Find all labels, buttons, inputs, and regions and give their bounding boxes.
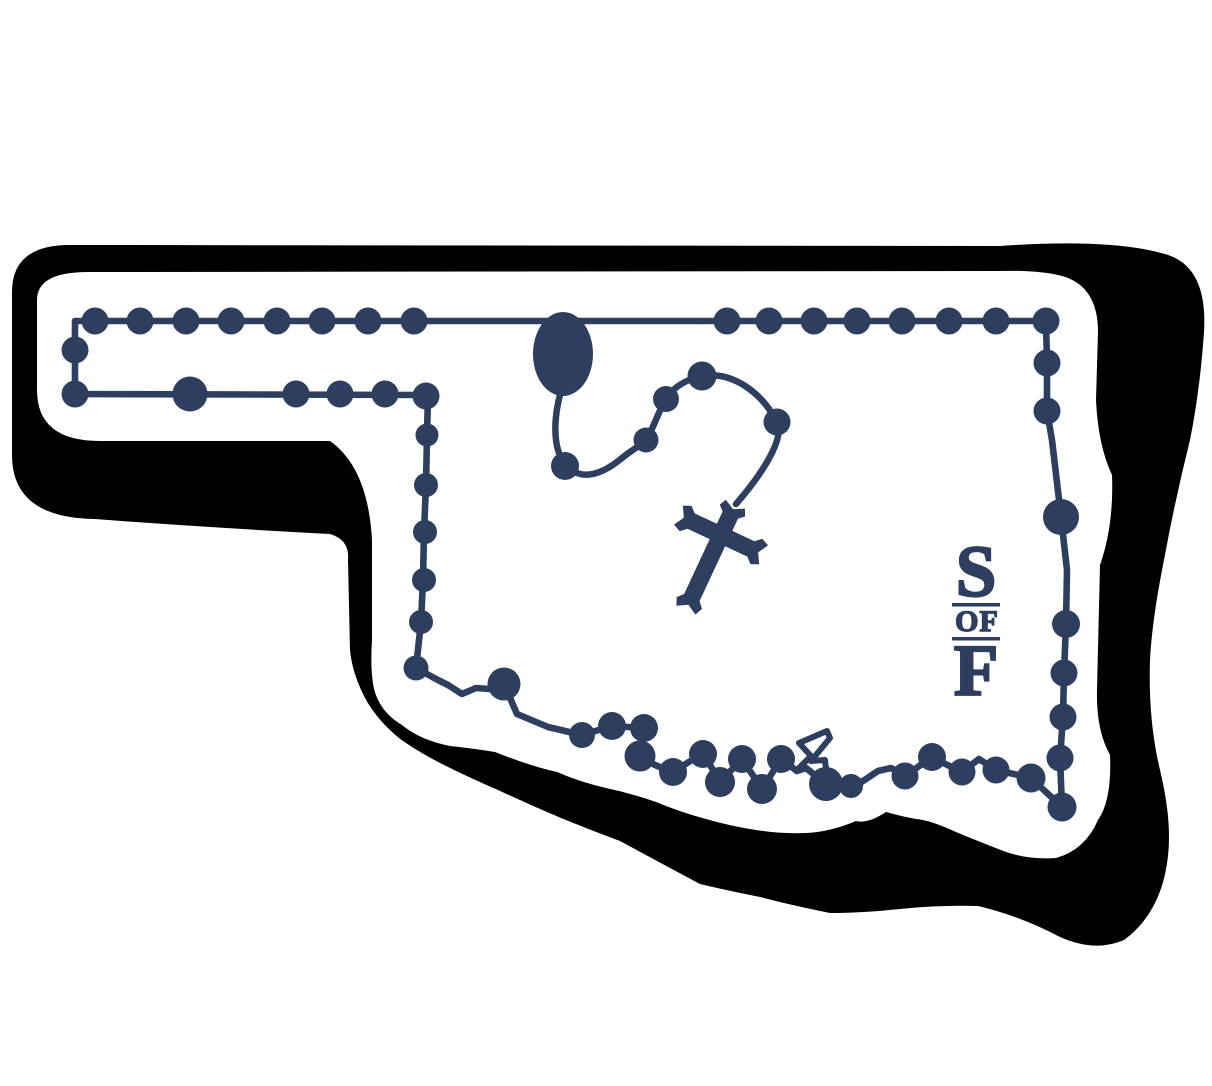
svg-text:S: S [956, 531, 997, 612]
svg-text:F: F [954, 630, 999, 711]
